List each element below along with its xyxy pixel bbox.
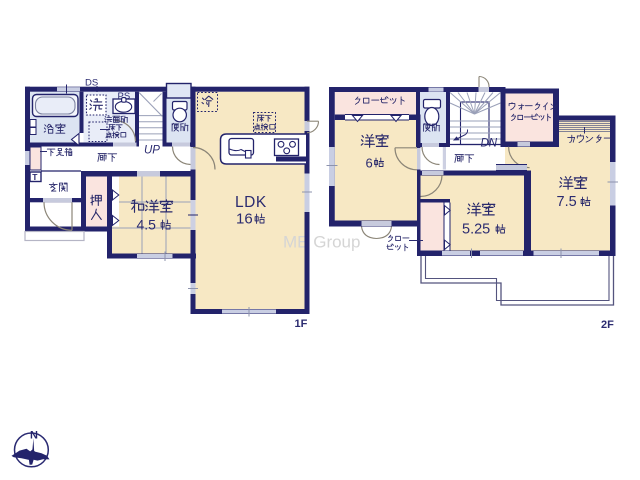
- svg-text:DS: DS: [85, 78, 98, 89]
- svg-text:PS: PS: [118, 91, 131, 102]
- svg-text:7.5: 7.5: [557, 194, 577, 210]
- svg-text:4.5: 4.5: [137, 217, 157, 233]
- svg-text:16: 16: [236, 211, 253, 228]
- svg-text:N: N: [30, 430, 38, 442]
- svg-text:5.25: 5.25: [462, 222, 490, 238]
- svg-text:LDK: LDK: [235, 194, 267, 211]
- svg-text:2F: 2F: [601, 319, 614, 331]
- svg-text:ME Group: ME Group: [283, 233, 360, 252]
- svg-text:6: 6: [366, 156, 373, 171]
- svg-text:UP: UP: [144, 145, 160, 157]
- svg-text:1F: 1F: [295, 318, 308, 330]
- svg-text:T: T: [32, 172, 38, 182]
- svg-text:DN: DN: [481, 138, 498, 150]
